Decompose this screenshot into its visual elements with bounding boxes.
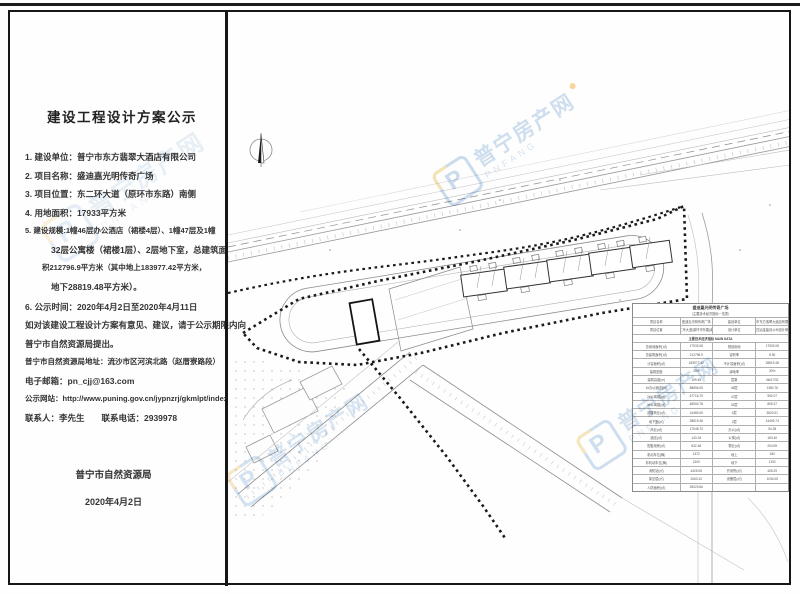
table-cell: 盛迪嘉光明传奇广场	[680, 318, 713, 325]
notice-line-5d: 地下28819.48平方米）。	[51, 282, 220, 292]
table-row: 3#公寓楼(㎡)48504.7832层805.37	[633, 400, 788, 408]
table-cell: 163.40	[755, 434, 788, 441]
table-cell: 公寓(㎡)	[712, 434, 755, 441]
table-cell: 总用地面积(㎡)	[633, 343, 680, 350]
table-cell	[755, 484, 788, 491]
table-cell: 架空层(㎡)	[633, 475, 680, 482]
table-cell: 405.29	[755, 467, 788, 474]
table-cell: 1380.76	[755, 384, 788, 391]
table-cell: 地下	[712, 459, 755, 466]
table-cell: 67716.79	[680, 393, 713, 400]
table-cell: 17048.70	[680, 426, 713, 433]
notice-line-5a: 5. 建设规模:1幢46层办公酒店（裙楼4层）、1幢47层及1幢	[25, 226, 220, 236]
table-cell: 层数	[712, 376, 755, 383]
table-cell: 地下室(㎡)	[633, 417, 680, 424]
table-row: 裙楼商业(㎡)14480.054层3620.01	[633, 408, 788, 416]
table-cell: 计容面积(㎡)	[633, 359, 680, 366]
table-cell: 非机动车位(辆)	[633, 459, 680, 466]
table-cell: 4层	[712, 409, 755, 416]
table-cell: 物业(㎡)	[712, 442, 755, 449]
table-cell: 规划用地	[712, 343, 755, 350]
table-cell: 805.37	[755, 401, 788, 408]
notice-title: 建设工程设计方案公示	[47, 106, 220, 126]
table-cell: 212796.9	[680, 351, 713, 358]
indicator-table-title: 盛迪嘉光明传奇广场	[633, 304, 788, 311]
table-cell: 4425.05	[680, 467, 713, 474]
table-row: 机动车位(辆)1372地上180	[633, 450, 788, 458]
table-row: 总用地面积(㎡)17933.08规划用地17933.08	[633, 342, 788, 350]
table-row: 建筑高度(m)199.45层数46/47/32	[633, 375, 788, 383]
signature-block: 普宁市自然资源局 2020年4月2日	[25, 467, 220, 508]
table-cell: 28819.48	[755, 359, 788, 366]
table-row: 非机动车位(辆)2100地下1192	[633, 458, 788, 466]
table-cell: 项目位置	[633, 326, 680, 333]
notice-line-1: 1. 建设单位：普宁市东方翡翠大酒店有限公司	[25, 152, 220, 162]
signature-org: 普宁市自然资源局	[25, 467, 202, 481]
table-cell: 183977.42	[680, 359, 713, 366]
table-cell: 总建筑面积(㎡)	[633, 351, 680, 358]
table-cell: 25%	[680, 368, 713, 375]
table-cell: 建筑高度(m)	[633, 376, 680, 383]
terrain-dotted-area	[228, 352, 348, 516]
table-cell: 3#公寓楼(㎡)	[633, 401, 680, 408]
table-cell: 28819.48	[680, 417, 713, 424]
table-cell: 东二环大道(原环市东路)南侧	[680, 326, 713, 333]
panel-divider	[225, 10, 228, 586]
table-cell: 主要技术经济指标 MAIN DATA	[633, 335, 788, 342]
notice-line-4: 4. 用地面积：17933平方米	[25, 208, 220, 218]
table-row: 商业(㎡)17048.70办公(㎡)54.28	[633, 425, 788, 433]
table-cell: 设备层(㎡)	[712, 475, 755, 482]
notice-website: 公示网站：http://www.puning.gov.cn/jypnzrj/gk…	[25, 394, 220, 404]
table-cell: 48504.78	[680, 401, 713, 408]
table-cell: 632.48	[680, 442, 713, 449]
tower-1-footprint	[350, 299, 380, 344]
table-cell: 2层	[712, 417, 755, 424]
table-cell: 绿地率	[712, 368, 755, 375]
table-cell: 26023.66	[680, 484, 713, 491]
building-footprints	[350, 236, 673, 351]
notice-para-1: 如对该建设工程设计方案有意见、建议，请于公示期限内向	[25, 320, 220, 330]
table-cell: 54.28	[755, 426, 788, 433]
table-cell: 3620.01	[755, 409, 788, 416]
table-cell: 设计单位	[712, 326, 755, 333]
table-cell: 商业(㎡)	[633, 426, 680, 433]
table-cell: 建筑密度	[633, 368, 680, 375]
table-cell: 地上	[712, 451, 755, 458]
table-row: 地下室(㎡)28819.482层14409.74	[633, 416, 788, 424]
table-cell: 项目名称	[633, 318, 680, 325]
table-cell: 普宁市东方翡翠大酒店有限公司	[755, 318, 788, 325]
notice-line-5c: 积212796.9平方米（其中地上183977.42平方米，	[42, 263, 220, 273]
table-cell: 17933.08	[680, 343, 713, 350]
table-cell: 180	[755, 451, 788, 458]
table-cell: 17933.08	[755, 343, 788, 350]
table-row: 1#办公酒店(㎡)88896.0546层1380.76	[633, 383, 788, 391]
indicator-table: 盛迪嘉光明传奇广场 （主要技术经济指标一览表） 项目名称盛迪嘉光明传奇广场建设单…	[632, 303, 789, 492]
table-cell: 14480.05	[680, 409, 713, 416]
table-row: 项目名称盛迪嘉光明传奇广场建设单位普宁市东方翡翠大酒店有限公司	[633, 317, 788, 325]
notice-email: 电子邮箱：pn_cjj@163.com	[25, 376, 220, 386]
main-road-band	[228, 110, 792, 262]
table-cell: 30%	[755, 368, 788, 375]
table-row: 酒店(㎡)143.34公寓(㎡)163.40	[633, 433, 788, 441]
table-cell: 204.95	[755, 442, 788, 449]
table-cell: 不计容面积(㎡)	[712, 359, 755, 366]
table-cell: 2#公寓楼(㎡)	[633, 393, 680, 400]
table-cell: 952.07	[755, 393, 788, 400]
notice-line-3: 3. 项目位置：东二环大道（原环市东路）南侧	[25, 189, 220, 199]
table-cell: 32层	[712, 401, 755, 408]
table-cell: 开闭所(㎡)	[712, 467, 755, 474]
table-cell: 裙楼商业(㎡)	[633, 409, 680, 416]
table-cell: 机动车位(辆)	[633, 451, 680, 458]
table-row: 计容面积(㎡)183977.42不计容面积(㎡)28819.48	[633, 358, 788, 366]
table-row: 配套用房(㎡)632.48物业(㎡)204.95	[633, 441, 788, 449]
notice-para-2: 普宁市自然资源局提出。	[25, 339, 220, 349]
table-cell: 1192	[755, 459, 788, 466]
table-cell: 1#办公酒店(㎡)	[633, 384, 680, 391]
notice-line-2: 2. 项目名称：盛迪嘉光明传奇广场	[25, 171, 220, 181]
table-cell: 8.90	[755, 351, 788, 358]
table-row: 主要技术经济指标 MAIN DATA	[633, 334, 788, 342]
table-cell: 容积率	[712, 351, 755, 358]
table-row: 项目位置东二环大道(原环市东路)南侧设计单位第十四冶金建设公司设计研究院	[633, 325, 788, 333]
table-cell: 消防站(㎡)	[633, 467, 680, 474]
table-row: 架空层(㎡)2063.10设备层(㎡)1034.05	[633, 474, 788, 482]
notice-text-panel: 建设工程设计方案公示 1. 建设单位：普宁市东方翡翠大酒店有限公司 2. 项目名…	[10, 10, 224, 584]
notice-contact: 联系人：李先生 联系电话：2939978	[25, 413, 220, 423]
table-row: 人防面积(㎡)26023.66	[633, 483, 788, 491]
table-cell: 47层	[712, 393, 755, 400]
table-cell: 143.34	[680, 434, 713, 441]
table-cell: 办公(㎡)	[712, 426, 755, 433]
table-row: 消防站(㎡)4425.05开闭所(㎡)405.29	[633, 466, 788, 474]
table-cell: 建设单位	[712, 318, 755, 325]
table-row: 建筑密度25%绿地率30%	[633, 367, 788, 375]
indicator-table-rows: 项目名称盛迪嘉光明传奇广场建设单位普宁市东方翡翠大酒店有限公司项目位置东二环大道…	[633, 317, 788, 491]
table-cell: 199.45	[680, 376, 713, 383]
north-arrow-icon	[250, 133, 272, 167]
table-cell: 酒店(㎡)	[633, 434, 680, 441]
notice-line-6: 6. 公示时间：2020年4月2日至2020年4月11日	[25, 302, 220, 312]
table-cell: 14409.74	[755, 417, 788, 424]
table-row: 2#公寓楼(㎡)67716.7947层952.07	[633, 392, 788, 400]
notice-line-5b: 32层公寓楼（裙楼1层）、2层地下室，总建筑面	[51, 245, 220, 255]
table-row: 总建筑面积(㎡)212796.9容积率8.90	[633, 350, 788, 358]
table-cell: 配套用房(㎡)	[633, 442, 680, 449]
table-cell: 2063.10	[680, 475, 713, 482]
table-cell: 88896.05	[680, 384, 713, 391]
table-cell: 1034.05	[755, 475, 788, 482]
table-cell: 第十四冶金建设公司设计研究院	[755, 326, 788, 333]
table-cell	[712, 484, 755, 491]
signature-date: 2020年4月2日	[25, 495, 202, 508]
notice-para-3: 普宁市自然资源局地址：流沙市区河滨北路（赵厝寮路段）	[25, 357, 220, 367]
table-cell: 46层	[712, 384, 755, 391]
table-cell: 2100	[680, 459, 713, 466]
table-cell: 1372	[680, 451, 713, 458]
table-cell: 人防面积(㎡)	[633, 484, 680, 491]
scanned-notice-page: 盛迪嘉光明传奇广场 （主要技术经济指标一览表） 项目名称盛迪嘉光明传奇广场建设单…	[0, 0, 800, 594]
table-cell: 46/47/32	[755, 376, 788, 383]
